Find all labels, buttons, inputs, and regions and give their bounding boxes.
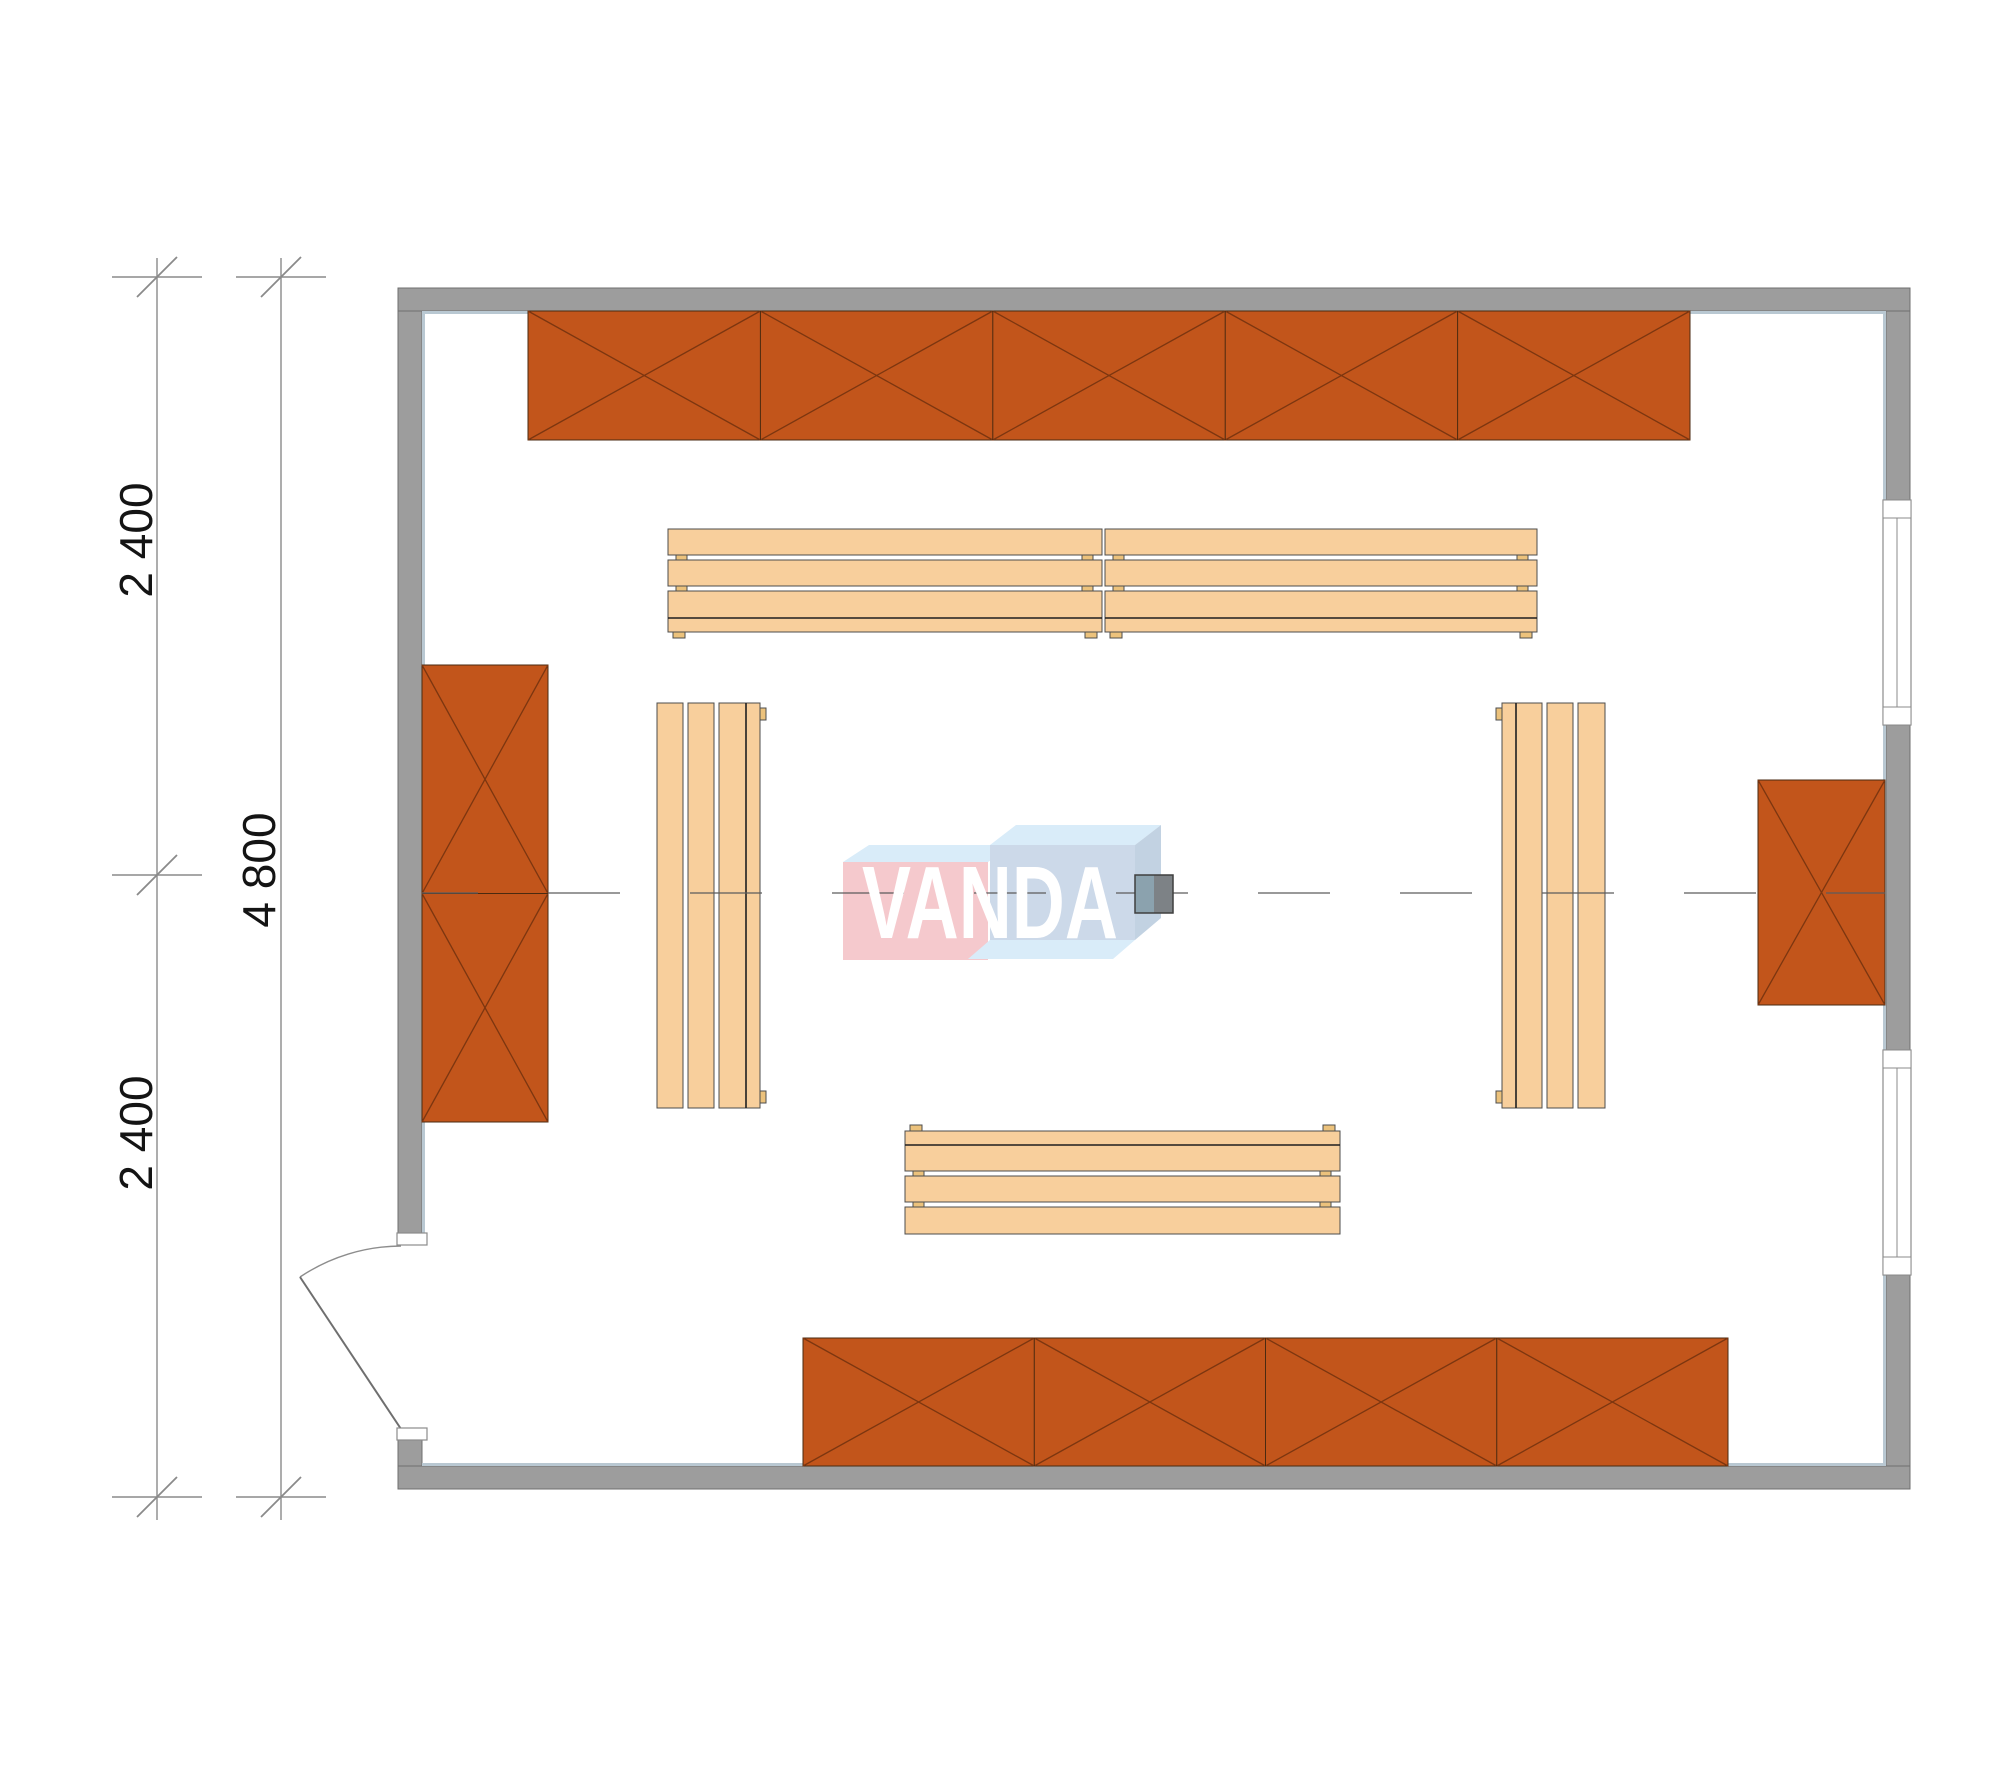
wall-left-upper	[398, 311, 422, 1245]
bench-right	[1496, 703, 1605, 1108]
floor-plan-canvas: VANDA	[0, 0, 2000, 1786]
wall-top	[398, 288, 1910, 311]
wall-bottom	[398, 1466, 1910, 1489]
wall-right-upper	[1886, 311, 1910, 500]
bench-top-left	[668, 529, 1102, 638]
door-frame-top	[397, 1233, 427, 1245]
dimension-lines: 2 400 4 800 2 400	[110, 257, 326, 1520]
door-swing-arc	[300, 1246, 401, 1277]
door-leaf	[300, 1277, 401, 1429]
watermark-text: VANDA	[862, 845, 1118, 960]
bench-bottom	[905, 1125, 1340, 1234]
window-upper-cap-bottom	[1883, 707, 1911, 725]
wall-right-middle	[1886, 725, 1910, 1050]
door-frame-bottom	[397, 1428, 427, 1440]
shelf-bottom-wall	[803, 1338, 1728, 1466]
window-upper	[1883, 500, 1911, 725]
dimension-label-total: 4 800	[233, 812, 285, 927]
door	[300, 1233, 427, 1440]
bench-top-right	[1105, 529, 1537, 638]
window-lower	[1883, 1050, 1911, 1275]
window-lower-cap-bottom	[1883, 1257, 1911, 1275]
floor-plan-drawing: VANDA	[0, 0, 2000, 1786]
wall-right-lower	[1886, 1275, 1910, 1466]
watermark-blue-box-top-face	[990, 825, 1161, 845]
window-lower-cap-top	[1883, 1050, 1911, 1068]
dimension-label-top-segment: 2 400	[110, 482, 162, 597]
window-upper-cap-top	[1883, 500, 1911, 518]
column-right-half	[1154, 875, 1173, 913]
center-column	[1135, 875, 1173, 913]
bench-left	[657, 703, 766, 1108]
shelf-top-wall	[528, 311, 1690, 440]
dimension-label-bottom-segment: 2 400	[110, 1075, 162, 1190]
column-left-half	[1135, 875, 1154, 913]
